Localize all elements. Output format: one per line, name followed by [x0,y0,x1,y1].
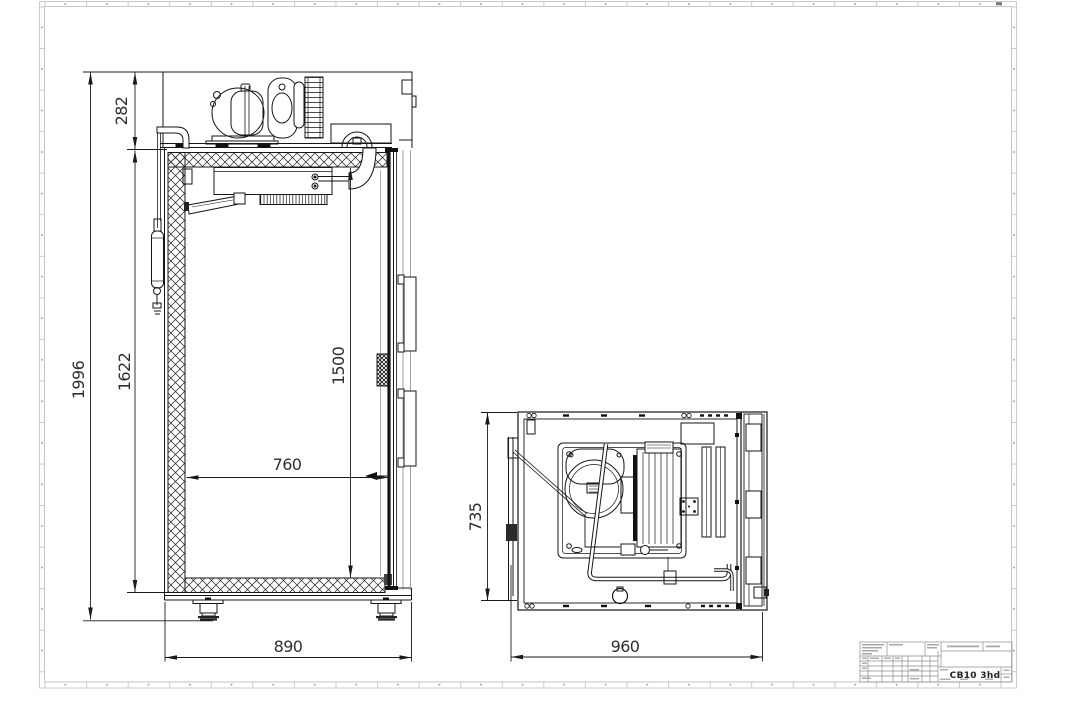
fastener-row-bottom [525,603,742,609]
door-hinge-upper [398,275,416,352]
door-hinge-lower [398,389,416,467]
foot-right [371,598,401,621]
compressor-top [565,449,624,518]
cad-canvas: 1996 1622 282 1500 760 890 [0,0,1066,703]
dim-interior-width-label: 760 [273,455,302,474]
fan-scroll [342,132,372,147]
fastener-row-top [527,413,742,419]
zone-col-right [1012,7,1017,683]
title-block: CB10 3hd [860,642,1012,682]
feet [193,598,401,621]
insulated-body [165,148,412,600]
dim-depth-label: 735 [466,503,485,532]
junction-box [681,423,714,444]
compressor-side [206,84,278,144]
machine-compartment [160,72,416,148]
door-handle-mark [365,472,377,480]
door-section [365,148,416,590]
foot-left [193,598,223,621]
condenser-top [621,442,681,547]
title-block-model-name: CB10 3hd [950,671,1001,681]
drawing-sheet: 1996 1622 282 1500 760 890 [0,0,1066,703]
zone-label-mark [996,2,1002,5]
dim-overall-width-label: 890 [274,637,303,656]
dim-overall-depth-label: 960 [611,637,640,656]
side-section-view [152,72,417,621]
zone-row-top [45,2,1012,7]
piping [572,444,732,604]
door-lock-block [377,354,388,386]
top-view [506,412,769,610]
dim-body-height-label: 1622 [115,353,134,391]
zone-row-bottom [45,682,1012,688]
dim-overall-height-label: 1996 [69,360,88,399]
top-view-door-edge [735,412,769,610]
dim-interior-height-label: 1500 [329,346,348,385]
zone-col-left [40,7,45,683]
mounting-pad [680,498,698,515]
condensing-unit [268,77,323,138]
dim-unit-height-label: 282 [112,97,131,126]
air-duct-strips [702,447,725,537]
